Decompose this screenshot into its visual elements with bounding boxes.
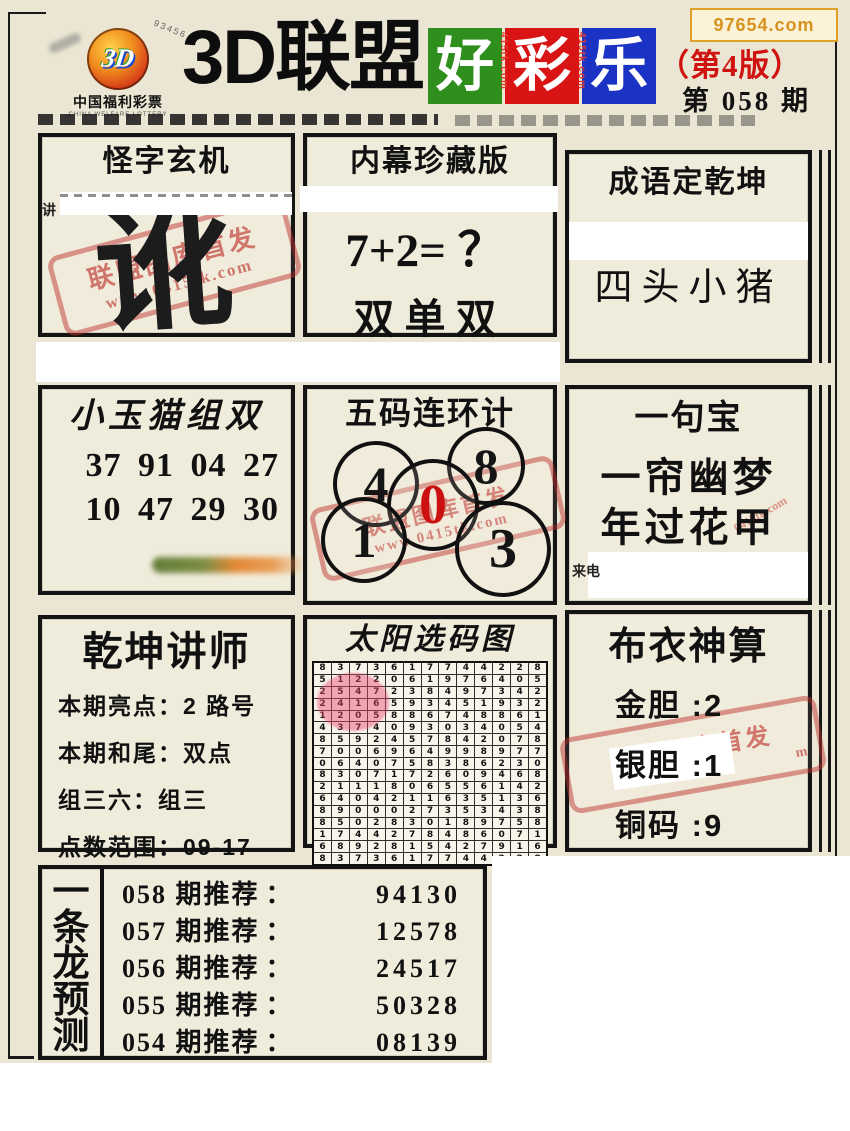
sun-grid-cell: 8	[422, 687, 440, 699]
prediction-value: 50328	[376, 991, 475, 1021]
panel-qiankun-jiangshi: 乾坤讲师 本期亮点：2 路号 本期和尾：双点 组三六：组三 点数范围：09-17	[38, 615, 295, 852]
sun-grid-cell: 5	[511, 818, 529, 830]
china-welfare-lottery-logo: 93456 3D 中国福利彩票 CHINA WELFARE LOTTERY	[42, 24, 194, 116]
colon: :	[692, 688, 704, 723]
sun-grid-cell: 3	[457, 794, 475, 806]
sun-grid-cell: 0	[350, 794, 368, 806]
sun-grid-cell: 8	[386, 782, 404, 794]
sun-grid-cell: 6	[386, 663, 404, 675]
sun-grid-cell: 2	[457, 841, 475, 853]
sun-grid-cell: 6	[475, 758, 493, 770]
sun-grid-cell: 7	[475, 841, 493, 853]
panel-buyi-shensuan: 布衣神算 联盟网库首发 m 金胆 :2 银胆 :1 铜码 :9	[565, 610, 812, 852]
sun-grid-cell: 7	[422, 853, 440, 864]
buyi-value: 9	[704, 808, 723, 843]
sun-grid-cell: 4	[368, 829, 386, 841]
sun-grid-cell: 8	[314, 663, 332, 675]
sun-grid-cell: 9	[404, 722, 422, 734]
sun-grid-cell: 4	[475, 853, 493, 864]
accent-line	[819, 385, 822, 605]
sun-grid-cell: 1	[350, 782, 368, 794]
panel-xiaoyumao-zushuang: 小玉猫组双 37 91 04 27 10 47 29 30	[38, 385, 295, 595]
sun-grid-cell: 4	[493, 675, 511, 687]
sun-grid-cell: 4	[529, 722, 546, 734]
sun-grid-row: 8307172609468	[314, 770, 546, 782]
sun-grid-cell: 8	[386, 711, 404, 723]
sun-grid-cell: 4	[422, 746, 440, 758]
wuma-circle-5: 3	[455, 501, 551, 597]
sun-grid-cell: 3	[457, 722, 475, 734]
covered-text-strip-2	[455, 115, 755, 126]
sun-grid-cell: 0	[439, 722, 457, 734]
sun-grid-cell: 0	[404, 782, 422, 794]
sun-grid-cell: 3	[493, 687, 511, 699]
qiankun-label: 本期亮点	[58, 693, 158, 719]
panel-neimu-zhencang: 内幕珍藏版 7+2= ？ 双单双	[303, 133, 557, 337]
qiankun-row: 点数范围：09-17	[42, 824, 291, 871]
sun-grid-cell: 4	[386, 734, 404, 746]
white-cover-guai	[60, 192, 292, 215]
colon: ：	[266, 874, 294, 911]
sun-grid-cell: 0	[493, 722, 511, 734]
sun-grid-cell: 8	[314, 818, 332, 830]
white-band-row1	[36, 342, 560, 382]
logo-org-name: 中国福利彩票	[42, 92, 194, 112]
sun-grid-cell: 1	[529, 829, 546, 841]
sun-grid-cell: 0	[386, 675, 404, 687]
sun-grid-cell: 8	[332, 841, 350, 853]
sun-grid-cell: 6	[475, 829, 493, 841]
sun-grid-cell: 2	[368, 734, 386, 746]
sun-grid-cell: 8	[475, 711, 493, 723]
sun-grid-cell: 6	[386, 853, 404, 864]
sun-grid-cell: 7	[439, 663, 457, 675]
sun-grid-cell: 4	[439, 841, 457, 853]
sun-grid-cell: 7	[439, 711, 457, 723]
sun-grid-cell: 1	[422, 675, 440, 687]
sun-grid-cell: 8	[529, 734, 546, 746]
sun-grid-cell: 1	[332, 782, 350, 794]
sun-grid-cell: 4	[457, 853, 475, 864]
sun-grid-cell: 7	[404, 829, 422, 841]
sun-grid-cell: 8	[457, 818, 475, 830]
sun-grid-cell: 2	[493, 663, 511, 675]
white-band-bottom	[0, 1063, 850, 1131]
sun-grid-cell: 7	[422, 663, 440, 675]
sun-grid-cell: 4	[457, 663, 475, 675]
sun-grid-cell: 9	[475, 770, 493, 782]
sun-grid-cell: 8	[422, 829, 440, 841]
prediction-label: 057 期推荐	[122, 911, 260, 948]
white-cover-neimu	[300, 186, 558, 212]
sun-grid-row: 6892815427916	[314, 841, 546, 853]
sun-grid-cell: 4	[493, 806, 511, 818]
sun-grid-cell: 2	[314, 782, 332, 794]
masthead-block-1: 好	[428, 28, 502, 104]
sun-grid-cell: 6	[404, 746, 422, 758]
sun-grid-cell: 6	[404, 675, 422, 687]
sun-grid-cell: 4	[439, 687, 457, 699]
wuma-circle-4: 1	[321, 497, 407, 583]
prediction-label: 058 期推荐	[122, 874, 260, 911]
qiankun-label: 点数范围	[58, 834, 158, 860]
accent-line	[828, 150, 831, 363]
sun-grid-cell: 8	[529, 806, 546, 818]
sun-grid-cell: 7	[493, 818, 511, 830]
covered-text-strip-1	[38, 114, 438, 125]
logo-brand-text: 3D	[100, 43, 136, 73]
sun-grid-cell: 7	[511, 734, 529, 746]
sun-grid-cell: 0	[368, 806, 386, 818]
panel-yijubao-title: 一句宝	[569, 399, 808, 438]
sun-grid-cell: 2	[493, 758, 511, 770]
sun-grid-cell: 1	[386, 770, 404, 782]
dragon-char: 龙	[53, 947, 90, 983]
xiaoyumao-numbers-2: 10 47 29 30	[86, 491, 280, 529]
sun-grid-cell: 8	[314, 734, 332, 746]
sun-grid-cell: 2	[404, 806, 422, 818]
accent-line	[828, 610, 831, 852]
panel-xiaoyumao-title: 小玉猫组双	[42, 397, 291, 436]
sun-grid-cell: 2	[422, 770, 440, 782]
sun-grid-cell: 0	[368, 758, 386, 770]
sun-grid-row: 8502830189758	[314, 818, 546, 830]
sun-grid-cell: 0	[422, 818, 440, 830]
prediction-list: 058 期推荐：94130 057 期推荐：12578 056 期推荐：2451…	[122, 874, 475, 1051]
sun-grid-cell: 0	[350, 818, 368, 830]
sun-grid-cell: 1	[404, 853, 422, 864]
panel-wuma-lianhuanji: 五码连环计 联盟图库首发 www.0415tk.com 4 8 0 1 3	[303, 385, 557, 605]
panel-qiankun-title: 乾坤讲师	[42, 629, 291, 675]
accent-line	[819, 150, 822, 363]
panel-yitiaolong-yuce: 一 条 龙 预 测 058 期推荐：94130 057 期推荐：12578 05…	[38, 865, 487, 1060]
page-border-top-tick	[8, 12, 46, 14]
page-border-right	[835, 28, 837, 868]
accent-line	[828, 385, 831, 605]
sun-grid-cell: 4	[457, 711, 475, 723]
sun-grid-cell: 9	[439, 746, 457, 758]
sun-grid-cell: 5	[422, 841, 440, 853]
sun-grid-cell: 4	[350, 758, 368, 770]
sun-grid-cell: 9	[493, 841, 511, 853]
issue-number: 第 058 期	[682, 79, 811, 118]
sun-grid-cell: 0	[511, 675, 529, 687]
sun-grid-cell: 1	[404, 794, 422, 806]
sun-grid-cell: 0	[386, 806, 404, 818]
blurred-color-watermark	[152, 557, 302, 573]
sun-grid-cell: 7	[457, 675, 475, 687]
panel-wuma-title: 五码连环计	[307, 395, 553, 432]
sun-grid-cell: 6	[439, 794, 457, 806]
colon: ：	[158, 834, 183, 860]
sun-grid-cell: 8	[493, 711, 511, 723]
sun-grid-cell: 6	[314, 841, 332, 853]
masthead-block-3: 乐	[582, 28, 656, 104]
sun-grid-cell: 1	[475, 699, 493, 711]
sun-grid-cell: 6	[422, 711, 440, 723]
sun-grid-cell: 5	[439, 782, 457, 794]
sun-grid-cell: 4	[439, 829, 457, 841]
sun-grid-cell: 1	[439, 818, 457, 830]
prediction-row: 058 期推荐：94130	[122, 874, 475, 911]
sun-grid-cell: 9	[404, 699, 422, 711]
page-border-foot	[8, 1056, 34, 1059]
prediction-value: 12578	[376, 917, 475, 947]
prediction-label: 054 期推荐	[122, 1022, 260, 1059]
sun-grid-cell: 4	[439, 699, 457, 711]
masthead-title: 3D联盟	[182, 20, 423, 96]
sun-grid-cell: 1	[493, 782, 511, 794]
sun-grid-cell: 6	[314, 794, 332, 806]
sun-grid-row: 6404211635136	[314, 794, 546, 806]
prediction-label: 056 期推荐	[122, 948, 260, 985]
sun-grid-cell: 2	[475, 734, 493, 746]
panel-taiyang-title: 太阳选码图	[307, 623, 553, 658]
sun-grid-cell: 1	[404, 841, 422, 853]
sun-grid-cell: 4	[493, 770, 511, 782]
chengyu-content: 四头小猪	[569, 256, 808, 311]
sun-grid-cell: 6	[475, 675, 493, 687]
sun-grid-cell: 0	[457, 770, 475, 782]
sun-grid-cell: 7	[511, 829, 529, 841]
sun-grid-cell: 2	[529, 687, 546, 699]
panel-guaizi-title: 怪字玄机	[42, 145, 291, 180]
sun-grid-cell: 7	[511, 746, 529, 758]
sun-grid-cell: 2	[386, 794, 404, 806]
site-watermark-badge: 97654.com	[690, 8, 838, 42]
neimu-answer: 双单双	[307, 285, 553, 345]
dash-remnant	[60, 194, 292, 197]
sun-grid-cell: 2	[368, 841, 386, 853]
sun-grid-cell: 2	[386, 829, 404, 841]
sun-grid-cell: 5	[457, 782, 475, 794]
sun-grid-cell: 4	[368, 794, 386, 806]
sun-grid-cell: 3	[422, 722, 440, 734]
sun-grid-cell: 6	[439, 770, 457, 782]
dragon-char: 一	[53, 875, 90, 911]
sun-grid-cell: 5	[475, 794, 493, 806]
sun-grid-cell: 9	[386, 746, 404, 758]
sun-grid-cell: 7	[350, 853, 368, 864]
sun-grid-cell: 3	[368, 853, 386, 864]
sun-grid-cell: 0	[332, 746, 350, 758]
masthead-side-url-2: 415tk.com	[576, 32, 587, 104]
sun-grid-cell: 4	[475, 722, 493, 734]
logo-arc-left-blur	[47, 32, 82, 55]
sun-grid-cell: 7	[475, 687, 493, 699]
sun-grid-cell: 6	[368, 746, 386, 758]
prediction-value: 94130	[376, 880, 475, 910]
sun-grid-cell: 5	[457, 699, 475, 711]
sun-grid-row: 0640758386230	[314, 758, 546, 770]
prediction-row: 056 期推荐：24517	[122, 948, 475, 985]
sun-grid-cell: 3	[332, 853, 350, 864]
yijubao-line2: 年过花甲	[569, 495, 808, 553]
sun-grid-cell: 1	[529, 711, 546, 723]
sun-grid-cell: 8	[314, 853, 332, 864]
qiankun-label: 本期和尾	[58, 740, 158, 766]
colon: ：	[158, 693, 183, 719]
qiankun-row: 本期和尾：双点	[42, 730, 291, 777]
sun-grid-cell: 1	[422, 794, 440, 806]
sun-grid-cell: 8	[529, 770, 546, 782]
sun-grid-cell: 7	[404, 770, 422, 782]
sun-grid-cell: 9	[350, 734, 368, 746]
masthead-side-url-1: 415tk.com	[498, 32, 509, 104]
sun-grid-cell: 3	[511, 806, 529, 818]
sun-grid-cell: 0	[350, 806, 368, 818]
colon: :	[692, 748, 704, 783]
sun-grid-cell: 8	[314, 806, 332, 818]
sun-grid-cell: 3	[332, 770, 350, 782]
dragon-char: 条	[53, 911, 90, 947]
qiankun-label: 组三六	[58, 787, 133, 813]
sun-grid-cell: 2	[529, 782, 546, 794]
panel-chengyu-title: 成语定乾坤	[569, 166, 808, 201]
prediction-value: 24517	[376, 954, 475, 984]
dragon-char: 预	[53, 983, 90, 1019]
sun-grid-cell: 3	[439, 758, 457, 770]
sun-grid-cell: 8	[475, 746, 493, 758]
pink-highlight-circle	[317, 673, 389, 731]
sun-grid-cell: 6	[511, 711, 529, 723]
sun-grid-cell: 2	[368, 818, 386, 830]
sun-grid-row: 1744278486071	[314, 829, 546, 841]
prediction-row: 057 期推荐：12578	[122, 911, 475, 948]
qiankun-row: 本期亮点：2 路号	[42, 683, 291, 730]
sun-grid-cell: 9	[457, 746, 475, 758]
neimu-formula: 7+2= ？	[307, 211, 543, 280]
masthead-block-2: 彩	[505, 28, 579, 104]
sun-grid-cell: 8	[404, 711, 422, 723]
sun-grid-cell: 3	[368, 663, 386, 675]
globe-3d-icon: 3D	[87, 28, 149, 90]
sun-grid-cell: 7	[314, 746, 332, 758]
white-cover-chengyu	[569, 222, 808, 260]
sun-grid-cell: 4	[332, 794, 350, 806]
site-watermark-text: 97654.com	[713, 15, 814, 36]
sun-grid-cell: 7	[422, 806, 440, 818]
sun-grid-cell: 6	[529, 841, 546, 853]
dragon-char: 测	[53, 1019, 90, 1055]
page-border-left	[8, 12, 10, 1058]
corner-text-laidian: 来电	[572, 561, 600, 581]
sun-grid-cell: 8	[529, 663, 546, 675]
sun-grid-cell: 0	[314, 758, 332, 770]
sun-grid-cell: 4	[457, 734, 475, 746]
sun-grid-cell: 5	[404, 758, 422, 770]
prediction-label: 055 期推荐	[122, 985, 260, 1022]
sun-grid-cell: 9	[475, 818, 493, 830]
sun-grid-cell: 8	[457, 829, 475, 841]
sun-grid-cell: 4	[475, 663, 493, 675]
sun-grid-cell: 1	[314, 829, 332, 841]
qiankun-value: 09-17	[183, 834, 252, 860]
sun-grid-cell: 8	[422, 758, 440, 770]
colon: ：	[133, 787, 158, 813]
sun-grid-cell: 9	[457, 687, 475, 699]
sun-grid-cell: 8	[529, 818, 546, 830]
sun-grid-cell: 4	[350, 829, 368, 841]
sun-grid-cell: 8	[386, 841, 404, 853]
sun-grid-cell: 6	[422, 782, 440, 794]
panel-guaizi-xuanji: 怪字玄机 联盟图库首发 www.0415tk.com 讹	[38, 133, 295, 337]
sun-grid-cell: 7	[422, 734, 440, 746]
colon: :	[692, 808, 704, 843]
sun-grid-cell: 3	[511, 699, 529, 711]
sun-grid-cell: 3	[475, 806, 493, 818]
sun-grid-cell: 7	[368, 770, 386, 782]
sun-grid-cell: 3	[404, 687, 422, 699]
sun-grid-cell: 1	[404, 663, 422, 675]
edge-char-jiang: 讲	[42, 200, 56, 220]
sun-grid-cell: 8	[439, 734, 457, 746]
sun-grid-cell: 4	[511, 782, 529, 794]
colon: ：	[266, 985, 294, 1022]
sun-grid-cell: 5	[457, 806, 475, 818]
sun-grid-cell: 3	[439, 806, 457, 818]
sun-grid-row: 7006964998977	[314, 746, 546, 758]
sun-grid-cell: 6	[475, 782, 493, 794]
sun-grid-cell: 3	[511, 794, 529, 806]
colon: ：	[158, 740, 183, 766]
masthead-colored-blocks: 好 彩 乐	[428, 28, 656, 104]
sun-grid-cell: 0	[386, 722, 404, 734]
sun-grid-cell: 5	[332, 818, 350, 830]
buyi-row: 银胆 :1	[615, 740, 723, 785]
sun-grid-cell: 2	[511, 663, 529, 675]
sun-grid-row: 2111806556142	[314, 782, 546, 794]
buyi-value: 1	[704, 748, 723, 783]
xiaoyumao-numbers-1: 37 91 04 27	[86, 447, 280, 485]
sun-grid-cell: 8	[457, 758, 475, 770]
sun-grid-cell: 5	[332, 734, 350, 746]
sun-grid-cell: 0	[350, 746, 368, 758]
qiankun-value: 组三	[158, 787, 208, 813]
sun-grid-cell: 6	[332, 758, 350, 770]
sun-grid-cell: 9	[332, 806, 350, 818]
sun-grid-cell: 1	[493, 794, 511, 806]
sun-grid-cell: 0	[493, 734, 511, 746]
sun-grid-cell: 9	[350, 841, 368, 853]
sun-grid-row: 8900027353438	[314, 806, 546, 818]
sun-grid-cell: 6	[511, 770, 529, 782]
prediction-value: 08139	[376, 1028, 475, 1058]
lottery-bulletin-page: 97654.com 93456 3D 中国福利彩票 CHINA WELFARE …	[0, 0, 850, 1131]
white-cover-yijubao	[588, 552, 808, 598]
qiankun-row: 组三六：组三	[42, 777, 291, 824]
sun-grid-cell: 5	[404, 734, 422, 746]
sun-grid-cell: 3	[404, 818, 422, 830]
sun-grid-row: 8592457842078	[314, 734, 546, 746]
buyi-label: 铜码	[615, 808, 681, 843]
sun-grid-cell: 8	[386, 818, 404, 830]
sun-grid-cell: 8	[314, 770, 332, 782]
buyi-row: 金胆 :2	[615, 680, 723, 725]
panel-buyi-title: 布衣神算	[569, 626, 808, 670]
qiankun-value: 2 路号	[183, 693, 256, 719]
qiankun-value: 双点	[183, 740, 233, 766]
sun-grid-cell: 0	[493, 829, 511, 841]
colon: ：	[266, 911, 294, 948]
sun-grid-cell: 4	[511, 687, 529, 699]
sun-grid-cell: 5	[529, 675, 546, 687]
panel-neimu-title: 内幕珍藏版	[307, 145, 553, 180]
mystery-character: 讹	[90, 196, 237, 343]
panel-taiyang-xuanmatu: 太阳选码图 8373617744228512206197640525472384…	[303, 615, 557, 848]
sun-grid-cell: 6	[529, 794, 546, 806]
dragon-vertical-title: 一 条 龙 预 测	[42, 869, 104, 1056]
